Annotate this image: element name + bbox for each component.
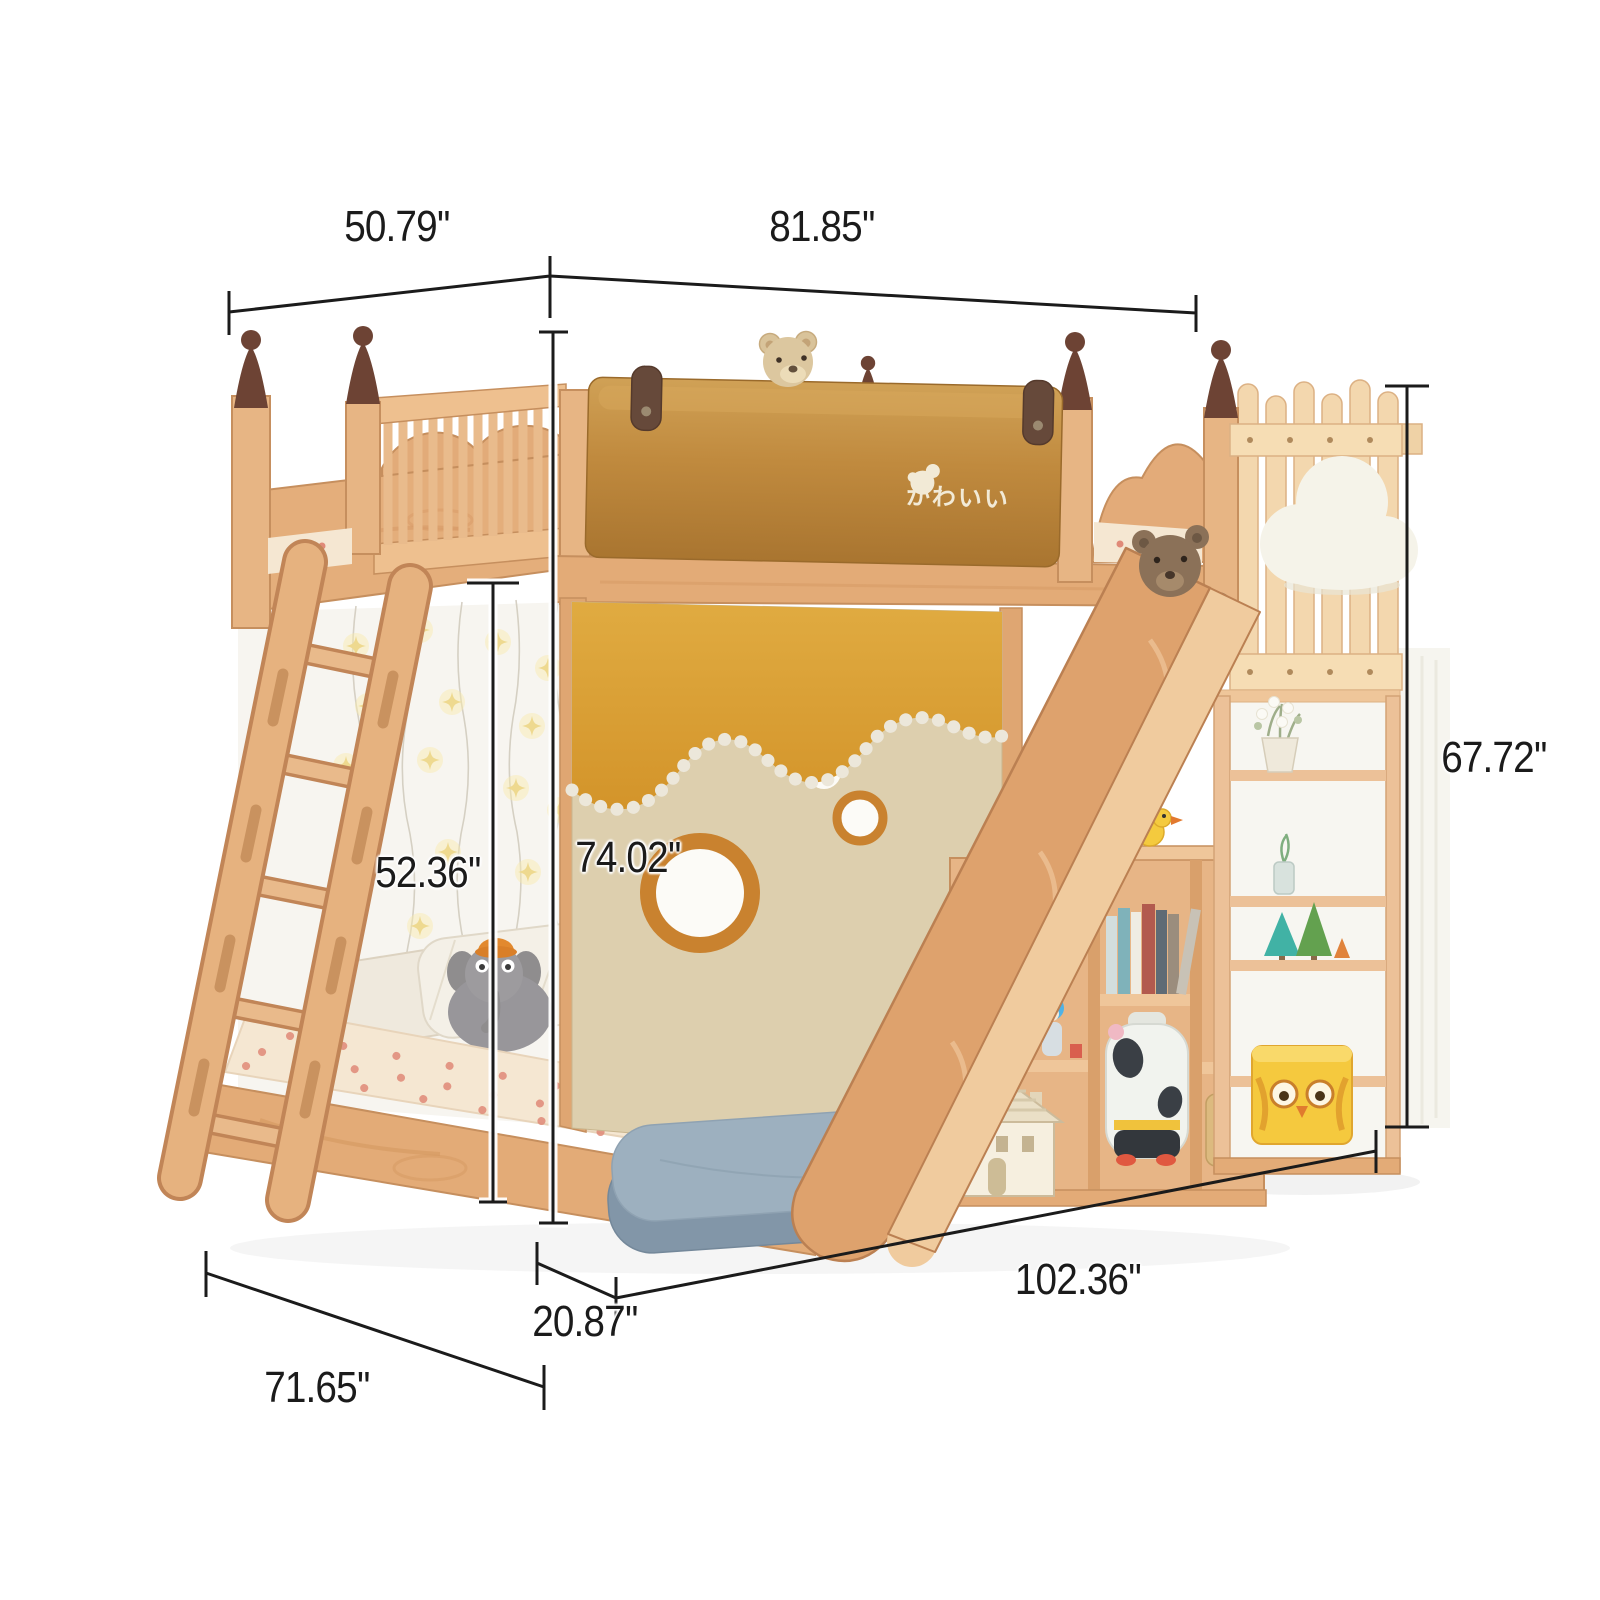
- dim-label-upper-width: 81.85'': [769, 202, 875, 252]
- leather-strap: [631, 366, 662, 431]
- brand-logo: かわいい: [905, 463, 1077, 529]
- teddy-bear-peeking: [760, 332, 817, 388]
- dim-label-fence-height: 67.72'': [1441, 733, 1547, 783]
- window-curtain: [1394, 648, 1450, 1128]
- dim-label-opening-height: 52.36'': [375, 848, 481, 898]
- dim-line-lower-depth: [206, 1251, 544, 1410]
- dim-label-overall-length: 102.36'': [1015, 1255, 1141, 1305]
- owl-storage-box: [1252, 1046, 1352, 1144]
- toy-backpack: [1106, 1012, 1188, 1166]
- dim-line-upper-depth: [229, 256, 550, 335]
- dim-line-upper-width: [550, 276, 1196, 332]
- dim-label-step-depth: 20.87'': [532, 1297, 638, 1347]
- fence-bookcase: [1214, 690, 1400, 1174]
- dim-label-upper-depth: 50.79'': [344, 202, 450, 252]
- bear-head-icon: [906, 463, 941, 496]
- leather-strap: [1023, 380, 1054, 445]
- product-dimension-diagram: かわいい 50.79'' 81.85'' 67.72'' 52.36'' 74.…: [0, 0, 1600, 1600]
- dim-label-lower-depth: 71.65'': [264, 1363, 370, 1413]
- dim-label-overall-height: 74.02'': [575, 833, 681, 883]
